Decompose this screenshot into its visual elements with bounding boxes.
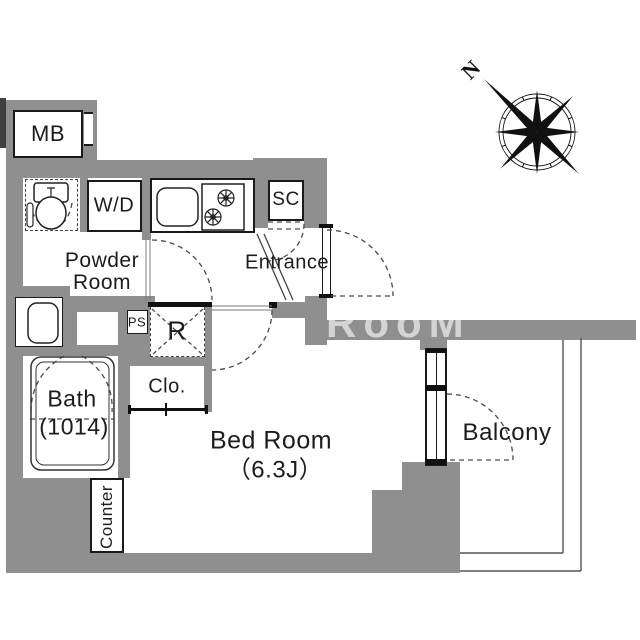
hall-door-arc — [212, 310, 272, 370]
room-label-bath-2: (1014) — [39, 414, 108, 441]
room-label-entrance: Entrance — [245, 252, 329, 275]
powder-door-leaf — [146, 240, 150, 300]
compass: N — [456, 55, 582, 177]
powder-door-arc — [152, 240, 212, 300]
opening-lines — [146, 240, 272, 310]
kitchen-sink — [157, 188, 198, 226]
room-label-balcony: Balcony — [463, 419, 552, 447]
room-label-powder-2: Room — [73, 271, 131, 295]
balcony-outline — [460, 338, 581, 571]
room-label-closet: Clo. — [148, 376, 186, 399]
stove — [202, 184, 244, 230]
room-label-mb: MB — [31, 121, 65, 147]
burner-icon — [218, 190, 234, 206]
room-label-bath-1: Bath — [47, 386, 96, 413]
plan-linework: N — [0, 0, 640, 640]
room-label-ps: PS — [128, 315, 146, 330]
room-label-refrigerator: R — [167, 316, 186, 347]
toilet — [27, 183, 68, 229]
room-label-powder-1: Powder — [65, 249, 139, 273]
room-label-bedroom-2: （6.3J） — [227, 450, 323, 485]
burner-icon — [205, 209, 221, 225]
room-label-sc: SC — [272, 189, 299, 211]
room-label-counter: Counter — [97, 485, 117, 549]
compass-spikes — [481, 76, 582, 177]
watermark: RooM — [326, 299, 471, 347]
floor-plan: N MB W/D Powder Room SC Entrance PS R Cl… — [0, 0, 640, 640]
compass-north-label: N — [456, 55, 485, 84]
wash-basin — [28, 303, 58, 343]
front-door-arc — [327, 230, 393, 296]
room-label-wd: W/D — [94, 195, 134, 218]
